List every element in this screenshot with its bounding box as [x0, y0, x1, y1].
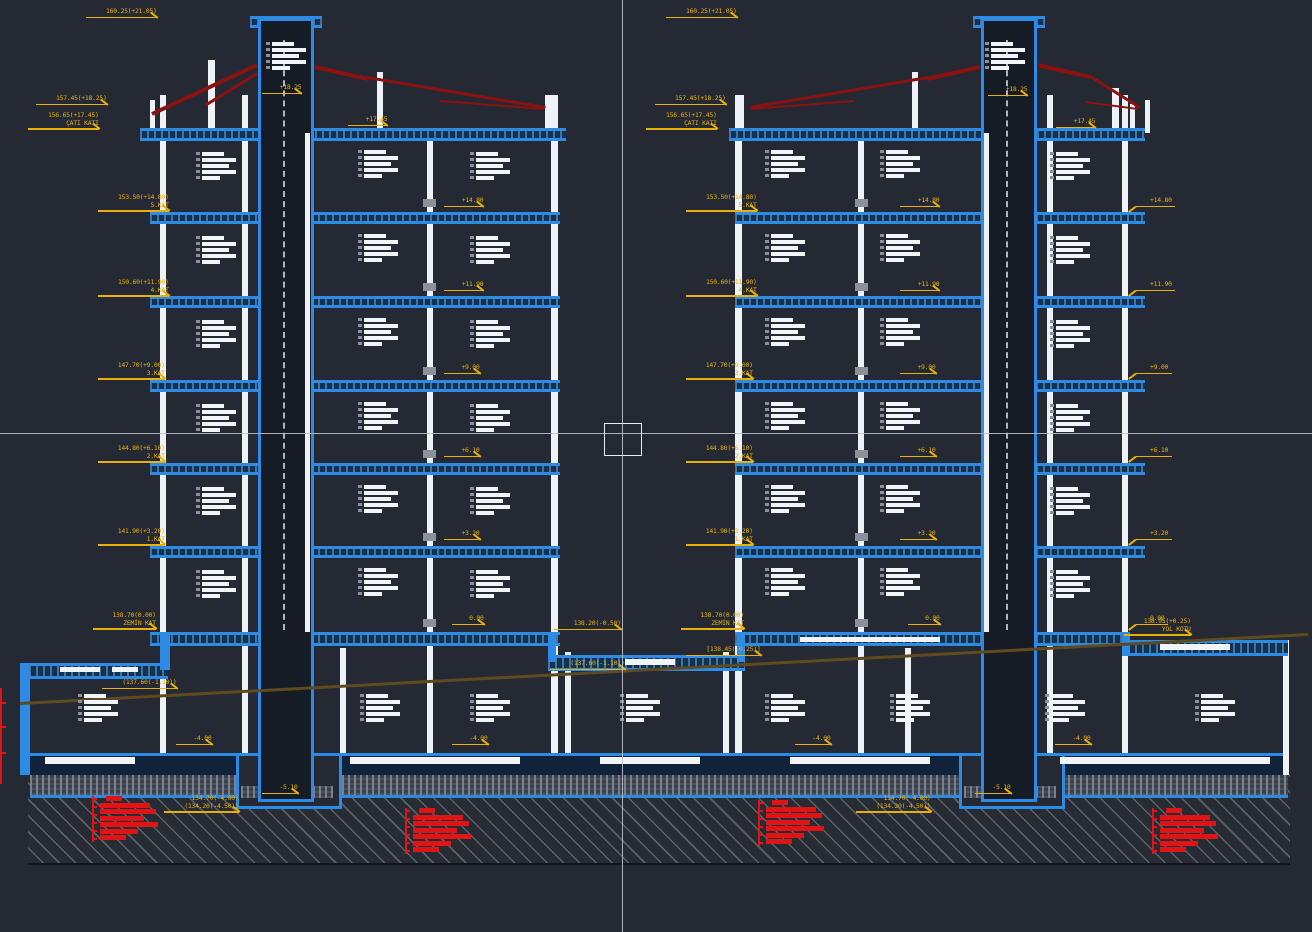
note-text-bar — [766, 820, 810, 825]
note-tick — [92, 806, 97, 808]
leader-line — [36, 104, 107, 106]
elevation-label: -4.00 — [1055, 735, 1091, 745]
fixture-symbol — [470, 152, 510, 182]
fixture-bar — [626, 694, 648, 698]
fixture-tick — [196, 170, 200, 173]
elevation-text: +9.00 — [1150, 364, 1172, 372]
fixture-bar — [364, 162, 391, 166]
fixture-tick — [470, 706, 474, 709]
fixture-bar — [626, 712, 660, 716]
fixture-tick — [1050, 410, 1054, 413]
fixture-tick — [196, 570, 200, 573]
basement-fixture — [620, 694, 660, 724]
fixture-symbol — [470, 487, 510, 517]
fixture-bar — [476, 152, 498, 156]
fixture-tick — [358, 420, 362, 423]
fixture-symbol — [880, 318, 920, 348]
fixture-bar — [1056, 570, 1078, 574]
fixture-tick — [880, 156, 884, 159]
fixture-bar — [476, 254, 510, 258]
note-rail — [758, 800, 760, 846]
elevation-text: (137.60(-1.10)) — [102, 679, 177, 687]
fixture-tick — [358, 156, 362, 159]
elevation-label: 141.90(+3.20)1.KAT — [686, 528, 753, 546]
ground-floor-slab — [150, 632, 560, 646]
fixture-bar — [1056, 254, 1090, 258]
fixture-tick — [470, 410, 474, 413]
fixture-tick — [358, 503, 362, 506]
fixture-bar — [84, 712, 118, 716]
leader-line — [176, 744, 212, 746]
fixture-bar — [771, 414, 798, 418]
floor-screed — [800, 637, 940, 642]
fixture-bar — [771, 712, 805, 716]
fixture-tick — [765, 497, 769, 500]
cursor-pickbox[interactable] — [604, 423, 642, 456]
floor-screed — [112, 667, 138, 672]
fixture-symbol — [358, 485, 398, 515]
note-tick — [92, 838, 97, 840]
fixture-bar — [886, 174, 904, 178]
fixture-tick — [765, 712, 769, 715]
fixture-tick — [765, 246, 769, 249]
fixture-bar — [272, 48, 306, 52]
leader-line — [686, 295, 757, 297]
fixture-tick — [1050, 254, 1054, 257]
fixture-tick — [765, 706, 769, 709]
fixture-bar — [202, 422, 236, 426]
fixture-tick — [470, 694, 474, 697]
fixture-tick — [1045, 712, 1049, 715]
fixture-bar — [364, 503, 398, 507]
fixture-tick — [765, 174, 769, 177]
floor-slab — [150, 546, 560, 558]
note-tick — [758, 826, 763, 828]
note-text-bar — [1160, 821, 1216, 826]
fixture-tick — [765, 718, 769, 721]
fixture-tick — [1050, 344, 1054, 347]
elevator-guide-line — [1006, 40, 1008, 630]
elevation-text: 4.KAT — [98, 287, 169, 295]
fixture-bar — [991, 48, 1025, 52]
fixture-bar — [202, 326, 236, 330]
fixture-symbol — [1050, 320, 1090, 350]
fixture-bar — [476, 511, 494, 515]
fixture-symbol — [358, 234, 398, 264]
fixture-tick — [78, 718, 82, 721]
fixture-bar — [366, 712, 400, 716]
leader-line — [98, 544, 165, 546]
elevation-label: -4.00 — [795, 735, 831, 745]
fixture-tick — [196, 320, 200, 323]
slab-step — [20, 663, 30, 775]
leader-line — [686, 378, 753, 380]
leader-line — [666, 17, 737, 19]
fixture-bar — [771, 240, 805, 244]
fixture-bar — [476, 694, 498, 698]
fixture-bar — [476, 416, 503, 420]
fixture-tick — [470, 487, 474, 490]
fixture-bar — [1056, 493, 1090, 497]
leader-line — [1136, 624, 1168, 626]
leader-line — [1124, 634, 1191, 636]
roof-slab — [140, 128, 566, 141]
fixture-tick — [358, 574, 362, 577]
fixture-bar — [202, 164, 229, 168]
fixture-bar — [84, 718, 102, 722]
fixture-bar — [771, 234, 793, 238]
note-tick — [405, 810, 410, 812]
fixture-tick — [266, 66, 270, 69]
fixture-bar — [364, 324, 398, 328]
elevation-text: 1.KAT — [98, 536, 165, 544]
wall-section — [340, 648, 346, 753]
leader-line — [93, 628, 156, 630]
fixture-bar — [886, 168, 920, 172]
elevation-label: 0.00 — [1150, 615, 1168, 625]
fixture-tick — [1050, 326, 1054, 329]
fixture-bar — [886, 258, 904, 262]
fixture-tick — [196, 158, 200, 161]
leader-line — [554, 629, 621, 631]
fixture-tick — [880, 574, 884, 577]
fixture-bar — [202, 404, 224, 408]
fixture-tick — [470, 700, 474, 703]
fixture-tick — [1050, 332, 1054, 335]
fixture-bar — [476, 260, 494, 264]
fixture-bar — [771, 700, 805, 704]
fixture-bar — [886, 509, 904, 513]
fixture-symbol — [880, 402, 920, 432]
fixture-tick — [470, 422, 474, 425]
fixture-tick — [470, 344, 474, 347]
fixture-bar — [771, 491, 805, 495]
fixture-tick — [358, 324, 362, 327]
roof-slab — [729, 128, 1145, 141]
fixture-tick — [196, 338, 200, 341]
fixture-bar — [476, 344, 494, 348]
fixture-tick — [890, 718, 894, 721]
fixture-tick — [880, 485, 884, 488]
fixture-bar — [771, 156, 805, 160]
fixture-tick — [985, 54, 989, 57]
fixture-tick — [1050, 570, 1054, 573]
floor-slab — [735, 380, 1145, 392]
elevation-label: 157.45(+18.25) — [655, 95, 726, 105]
fixture-tick — [358, 246, 362, 249]
fixture-bar — [476, 242, 510, 246]
cad-viewport[interactable]: 160.25(+21.05)157.45(+18.25)156.65(+17.4… — [0, 0, 1312, 932]
fixture-bar — [476, 236, 498, 240]
edge-tick — [0, 726, 6, 728]
fixture-tick — [358, 509, 362, 512]
note-text-bar — [100, 829, 138, 834]
fixture-tick — [1050, 428, 1054, 431]
floor-screed — [600, 757, 700, 764]
note-tick — [92, 798, 97, 800]
fixture-bar — [202, 428, 220, 432]
fixture-tick — [1195, 712, 1199, 715]
fixture-bar — [202, 582, 229, 586]
fixture-bar — [364, 342, 382, 346]
fixture-tick — [196, 236, 200, 239]
fixture-tick — [765, 568, 769, 571]
fixture-tick — [470, 254, 474, 257]
fixture-symbol — [196, 152, 236, 182]
leader-line — [444, 456, 480, 458]
wall-section — [1283, 640, 1289, 775]
fixture-tick — [985, 66, 989, 69]
fixture-tick — [266, 54, 270, 57]
fixture-tick — [196, 499, 200, 502]
note-text-bar — [413, 847, 439, 852]
fixture-bar — [272, 60, 306, 64]
elevation-label: +18.25 — [262, 84, 301, 94]
fixture-tick — [360, 712, 364, 715]
fixture-bar — [476, 712, 510, 716]
fixture-tick — [196, 242, 200, 245]
fixture-tick — [1050, 338, 1054, 341]
fixture-bar — [1056, 576, 1090, 580]
fixture-tick — [1050, 582, 1054, 585]
fixture-tick — [880, 426, 884, 429]
crosshair-vertical — [622, 0, 623, 932]
fixture-bar — [366, 706, 393, 710]
fixture-tick — [470, 505, 474, 508]
fixture-bar — [1056, 338, 1090, 342]
fixture-tick — [890, 694, 894, 697]
fixture-bar — [886, 150, 908, 154]
fixture-bar — [476, 487, 498, 491]
fixture-bar — [991, 66, 1009, 70]
fixture-symbol — [1050, 236, 1090, 266]
floor-screed — [1160, 644, 1230, 650]
basement-fixture — [765, 694, 805, 724]
fixture-bar — [366, 700, 400, 704]
note-tick — [758, 802, 763, 804]
note-text-bar — [766, 839, 792, 844]
elevation-text: 5.KAT — [686, 202, 757, 210]
fixture-bar — [886, 497, 913, 501]
fixture-bar — [364, 336, 398, 340]
note-text-bar — [419, 808, 435, 813]
fixture-bar — [886, 485, 908, 489]
fixture-tick — [1050, 594, 1054, 597]
fixture-bar — [1056, 428, 1074, 432]
note-text-bar — [106, 796, 122, 801]
note-text-bar — [413, 841, 451, 846]
fixture-tick — [880, 174, 884, 177]
note-tick — [1152, 850, 1157, 852]
elevation-label: 157.45(+18.25) — [36, 95, 107, 105]
fixture-bar — [476, 570, 498, 574]
fixture-bar — [84, 706, 111, 710]
fixture-bar — [1056, 164, 1083, 168]
fixture-bar — [1056, 511, 1074, 515]
fixture-bar — [1056, 260, 1074, 264]
fixture-tick — [765, 485, 769, 488]
fixture-symbol — [765, 402, 805, 432]
leader-line — [1136, 290, 1175, 292]
leader-line — [975, 793, 1011, 795]
fixture-tick — [196, 582, 200, 585]
leader-line — [452, 624, 484, 626]
fixture-tick — [358, 497, 362, 500]
roof-slope-line — [367, 76, 545, 108]
note-rail — [1152, 808, 1154, 854]
fixture-symbol — [196, 320, 236, 350]
fixture-bar — [364, 150, 386, 154]
note-text-bar — [100, 803, 150, 808]
fixture-bar — [202, 248, 229, 252]
leader-line — [98, 210, 169, 212]
fixture-bar — [886, 580, 913, 584]
fixture-tick — [985, 48, 989, 51]
elevation-label: +6.10 — [900, 447, 936, 457]
lintel-mark — [423, 533, 436, 541]
fixture-tick — [358, 336, 362, 339]
lintel-mark — [855, 619, 868, 627]
fixture-bar — [202, 487, 224, 491]
fixture-bar — [771, 568, 793, 572]
elevation-text: +3.20 — [1150, 530, 1172, 538]
fixture-tick — [1050, 493, 1054, 496]
fixture-bar — [1056, 242, 1090, 246]
fixture-tick — [358, 162, 362, 165]
fixture-tick — [196, 416, 200, 419]
fixture-bar — [476, 170, 510, 174]
fixture-tick — [880, 150, 884, 153]
fixture-tick — [880, 592, 884, 595]
fixture-bar — [886, 162, 913, 166]
fixture-tick — [470, 236, 474, 239]
fixture-tick — [196, 422, 200, 425]
fixture-tick — [358, 168, 362, 171]
fixture-bar — [771, 330, 798, 334]
fixture-tick — [1050, 164, 1054, 167]
core-inner-wall — [305, 133, 310, 632]
elevation-label: 138.70(0.00)ZEMİN KAT — [681, 612, 744, 630]
fixture-bar — [476, 404, 498, 408]
fixture-tick — [880, 402, 884, 405]
fixture-tick — [880, 491, 884, 494]
fixture-bar — [364, 568, 386, 572]
fixture-tick — [1050, 422, 1054, 425]
fixture-tick — [470, 248, 474, 251]
leader-line — [900, 290, 939, 292]
fixture-tick — [880, 342, 884, 345]
fixture-bar — [886, 234, 908, 238]
fixture-symbol — [765, 234, 805, 264]
leader-line — [28, 128, 99, 130]
basement-fixture — [890, 694, 930, 724]
fixture-tick — [880, 586, 884, 589]
leader-tick — [1128, 539, 1136, 546]
leader-line — [856, 811, 931, 813]
fixture-bar — [771, 586, 805, 590]
leader-line — [86, 17, 157, 19]
fixture-bar — [771, 150, 793, 154]
fixture-bar — [771, 402, 793, 406]
fixture-tick — [890, 712, 894, 715]
fixture-symbol — [880, 234, 920, 264]
elevation-text: 160.25(+21.05) — [666, 8, 737, 16]
fixture-symbol — [470, 236, 510, 266]
fixture-bar — [202, 158, 236, 162]
fixture-bar — [476, 248, 503, 252]
fixture-bar — [364, 408, 398, 412]
fixture-tick — [1045, 706, 1049, 709]
floor-screed — [1060, 757, 1210, 764]
floor-slab — [735, 546, 1145, 558]
leader-line — [686, 544, 753, 546]
fixture-tick — [765, 592, 769, 595]
leader-line — [102, 688, 177, 690]
fixture-bar — [771, 420, 805, 424]
fixture-tick — [196, 404, 200, 407]
fixture-bar — [771, 324, 805, 328]
fixture-tick — [765, 324, 769, 327]
fixture-bar — [202, 260, 220, 264]
fixture-symbol — [880, 485, 920, 515]
fixture-bar — [202, 416, 229, 420]
wall-section — [208, 60, 215, 133]
fixture-tick — [765, 162, 769, 165]
fixture-bar — [476, 499, 503, 503]
fixture-symbol — [765, 150, 805, 180]
note-text-bar — [772, 800, 788, 805]
fixture-bar — [886, 491, 920, 495]
fixture-tick — [880, 497, 884, 500]
fixture-tick — [358, 586, 362, 589]
fixture-tick — [196, 428, 200, 431]
leader-line — [164, 811, 239, 813]
fixture-tick — [358, 252, 362, 255]
leader-line — [900, 373, 936, 375]
fixture-bar — [476, 410, 510, 414]
elevation-label: +11.90 — [1150, 281, 1175, 291]
leader-line — [900, 539, 936, 541]
elevation-label: -5.10 — [262, 784, 298, 794]
fixture-bar — [886, 574, 920, 578]
fixture-tick — [880, 568, 884, 571]
fixture-bar — [272, 66, 290, 70]
fixture-tick — [765, 574, 769, 577]
elevation-text: +6.10 — [1150, 447, 1172, 455]
fixture-tick — [890, 706, 894, 709]
fixture-bar — [202, 410, 236, 414]
lintel-mark — [855, 283, 868, 291]
elevation-label: -5.10 — [975, 784, 1011, 794]
leader-line — [988, 95, 1027, 97]
fixture-tick — [985, 42, 989, 45]
fixture-tick — [470, 499, 474, 502]
fixture-bar — [476, 158, 510, 162]
fixture-bar — [202, 344, 220, 348]
lintel-mark — [855, 450, 868, 458]
note-text-bar — [413, 815, 463, 820]
fixture-symbol — [1050, 487, 1090, 517]
elevation-label: +17.45 — [1056, 118, 1095, 128]
fixture-bar — [1056, 404, 1078, 408]
note-tick — [405, 826, 410, 828]
leader-line — [686, 210, 757, 212]
leader-line — [1136, 373, 1172, 375]
elevation-label: 153.50(+14.80)5.KAT — [98, 194, 169, 212]
fixture-tick — [470, 320, 474, 323]
fixture-tick — [880, 318, 884, 321]
basement-fixture — [1195, 694, 1235, 724]
